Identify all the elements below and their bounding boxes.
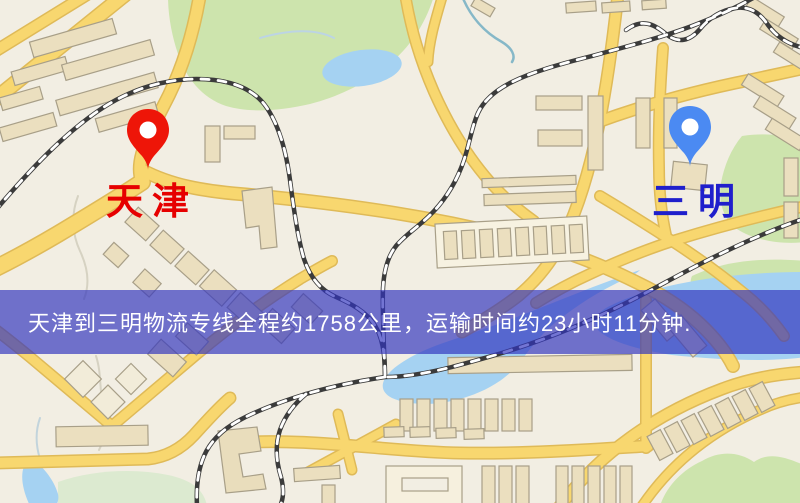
origin-marker-pin[interactable] xyxy=(122,106,174,179)
destination-marker-pin[interactable] xyxy=(664,103,716,176)
route-info-banner: 天津到三明物流专线全程约1758公里，运输时间约23小时11分钟. xyxy=(0,290,800,354)
blue-pin-icon xyxy=(664,103,716,171)
route-info-text: 天津到三明物流专线全程约1758公里，运输时间约23小时11分钟. xyxy=(28,306,691,338)
destination-marker-label: 三明 xyxy=(638,183,758,220)
map-screenshot: 天津 三明 天津到三明物流专线全程约1758公里，运输时间约23小时11分钟. xyxy=(0,0,800,503)
map-canvas[interactable] xyxy=(0,0,800,503)
red-pin-icon xyxy=(122,106,174,174)
origin-marker-label: 天津 xyxy=(92,183,212,220)
